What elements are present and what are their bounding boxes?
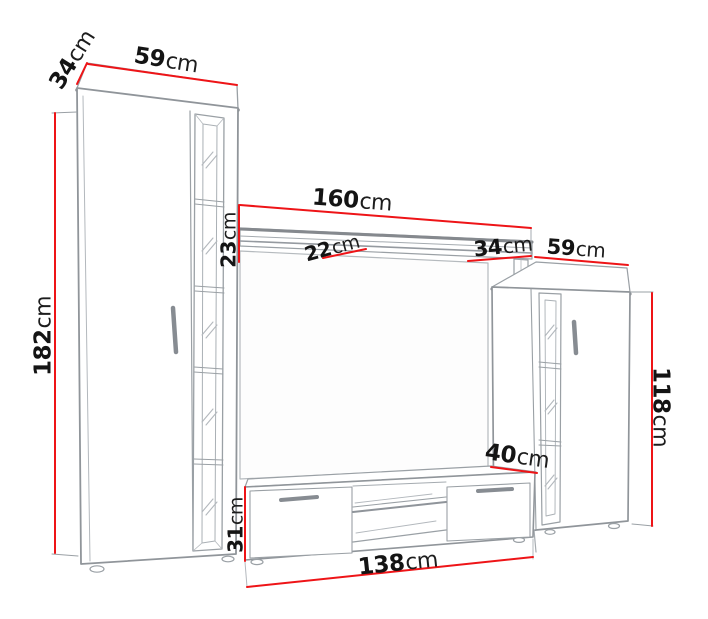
dim-label-right-cabinet-width: 59cm: [546, 236, 606, 261]
dim-unit: cm: [226, 497, 248, 525]
dim-unit: cm: [515, 445, 551, 474]
left-cabinet: [77, 63, 238, 572]
furniture-dimension-diagram: 34cm 59cm 182cm 160cm 23cm 22cm 34cm 59c…: [0, 0, 708, 619]
dim-label-right-cabinet-height: 118cm: [649, 367, 672, 447]
tv-stand-right-drawer-handle: [478, 489, 512, 491]
dim-unit: cm: [219, 212, 241, 240]
right-cabinet-glass-panel: [539, 293, 561, 525]
left-cabinet-door-handle: [173, 308, 176, 352]
dim-unit: cm: [502, 231, 534, 258]
tv-stand: [245, 466, 536, 565]
dim-unit: cm: [358, 189, 392, 216]
dim-value: 34: [472, 235, 503, 262]
dim-unit: cm: [404, 547, 439, 575]
dim-unit: cm: [32, 296, 57, 329]
dim-value: 118: [648, 367, 674, 414]
dim-unit: cm: [164, 49, 200, 79]
dim-value: 182: [31, 330, 57, 377]
dim-label-left-cabinet-height: 182cm: [33, 296, 56, 376]
dim-value: 59: [132, 43, 167, 74]
dim-label-shelf-clearance: 23cm: [219, 212, 240, 268]
dim-value: 31: [224, 526, 248, 553]
dim-value: 59: [546, 234, 576, 260]
dim-value: 160: [311, 184, 359, 214]
dim-value: 23: [217, 241, 241, 268]
diagram-canvas: [0, 0, 708, 619]
dim-unit: cm: [648, 414, 673, 447]
dim-value: 40: [483, 439, 517, 469]
right-cabinet-door-handle: [574, 322, 576, 353]
dim-unit: cm: [575, 237, 606, 263]
dim-label-shelf-width: 160cm: [311, 186, 393, 215]
back-panel: [240, 251, 488, 479]
dim-value: 138: [357, 550, 406, 581]
left-cabinet-glass-panel: [193, 114, 224, 551]
dim-label-tv-stand-height: 31cm: [226, 497, 247, 553]
